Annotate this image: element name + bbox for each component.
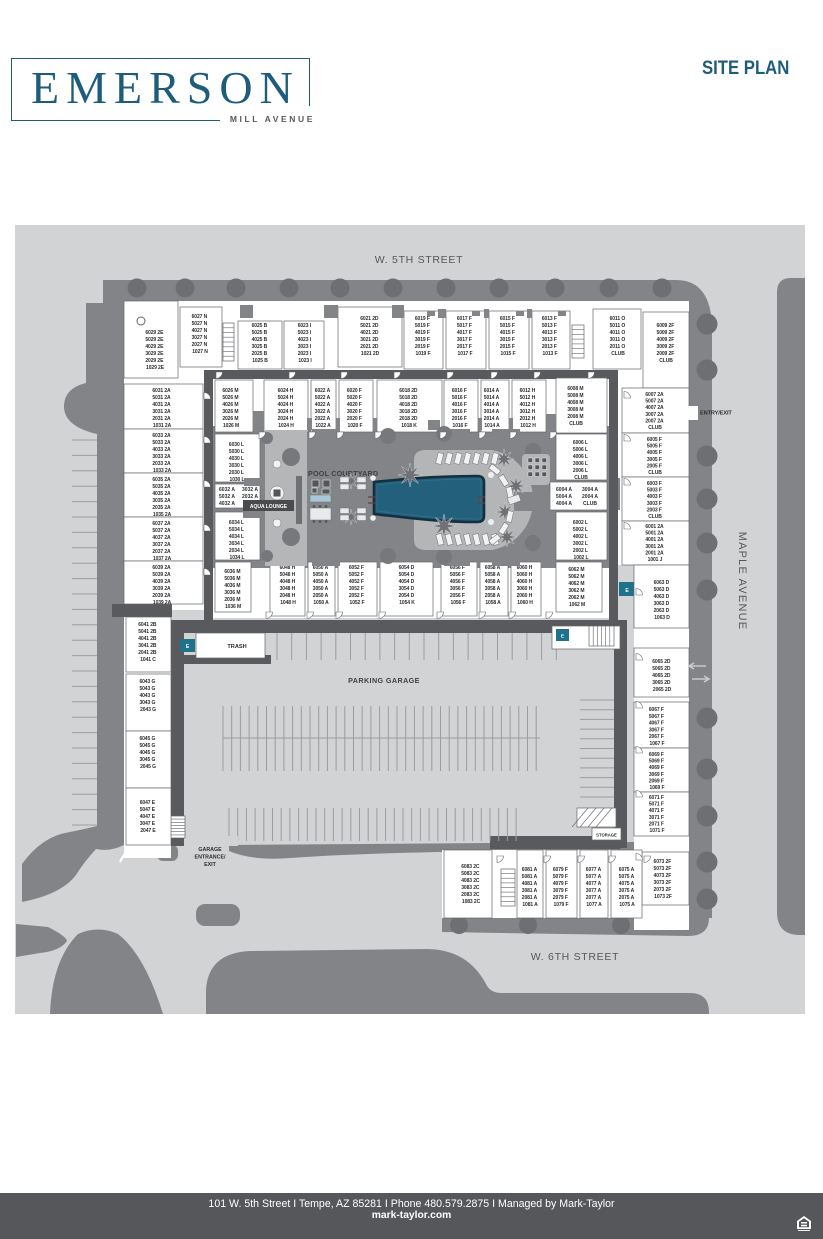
svg-text:6035 2A 5035 2A 4035 2A 3035 2: 6035 2A 5035 2A 4035 2A 3035 2A 2035 2A …	[152, 477, 171, 518]
svg-text:6002 L 5002 L 4002 L 3002 L 20: 6002 L 5002 L 4002 L 3002 L 2002 L 1002 …	[573, 520, 589, 561]
svg-text:6030 L 5030 L 4030 L 3030 L 20: 6030 L 5030 L 4030 L 3030 L 2030 L 1030 …	[229, 442, 245, 483]
svg-text:6020 F 5020 F 4020 F 3020 F 20: 6020 F 5020 F 4020 F 3020 F 2020 F 1020 …	[347, 388, 363, 429]
svg-text:6029 2E 5029 2E 4029 2E 3029 2: 6029 2E 5029 2E 4029 2E 3029 2E 2029 2E …	[145, 330, 164, 371]
svg-text:6013 F 5013 F 4013 F 3013 F 20: 6013 F 5013 F 4013 F 3013 F 2013 F 1013 …	[542, 316, 558, 357]
svg-text:6016 F 5016 F 4016 F 3016 F 20: 6016 F 5016 F 4016 F 3016 F 2016 F 1016 …	[452, 388, 468, 429]
svg-text:6034 L 5034 L 4034 L 3034 L 20: 6034 L 5034 L 4034 L 3034 L 2034 L 1034 …	[229, 520, 245, 561]
svg-text:6069 F 5069 F 4069 F 3069 F 20: 6069 F 5069 F 4069 F 3069 F 2069 F 1069 …	[649, 752, 665, 791]
svg-text:6071 F 5071 F 4071 F 3071 F 20: 6071 F 5071 F 4071 F 3071 F 2071 F 1071 …	[649, 795, 665, 834]
svg-text:6081 A 5081 A 4081 A 3081 A 20: 6081 A 5081 A 4081 A 3081 A 2081 A 1081 …	[522, 867, 538, 908]
svg-text:6077 A 5077 A 4077 A 3077 A 20: 6077 A 5077 A 4077 A 3077 A 2077 A 1077 …	[586, 867, 602, 908]
svg-text:6031 2A 5031 2A 4031 2A 3031 2: 6031 2A 5031 2A 4031 2A 3031 2A 2031 2A …	[152, 388, 171, 429]
svg-text:6075 A 5075 A 4075 A 3075 A 20: 6075 A 5075 A 4075 A 3075 A 2075 A 1075 …	[619, 867, 635, 908]
svg-text:6067 F 5067 F 4067 F 3067 F 20: 6067 F 5067 F 4067 F 3067 F 2067 F 1067 …	[649, 707, 665, 747]
svg-text:AQUA LOUNGE: AQUA LOUNGE	[250, 504, 288, 510]
svg-text:6063 D 5063 D 4063 D 3063 D 20: 6063 D 5063 D 4063 D 3063 D 2063 D 1063 …	[654, 580, 671, 621]
svg-text:6018 2D 5018 2D 4018 2D 3018 2: 6018 2D 5018 2D 4018 2D 3018 2D 2018 2D …	[399, 388, 419, 429]
svg-text:6006 L 5006 L 4006 L 3006 L 20: 6006 L 5006 L 4006 L 3006 L 2006 L CLUB	[573, 440, 589, 481]
svg-text:6033 2A 5033 2A 4033 2A 3033 2: 6033 2A 5033 2A 4033 2A 3033 2A 2033 2A …	[152, 433, 171, 474]
svg-text:W. 5TH STREET: W. 5TH STREET	[375, 254, 463, 266]
svg-text:TRASH: TRASH	[227, 644, 246, 650]
svg-text:6004 A5004 A4004 A: 6004 A5004 A4004 A	[556, 487, 572, 507]
svg-text:6052 F 5052 F 4052 F 3052 F 20: 6052 F 5052 F 4052 F 3052 F 2052 F 1052 …	[349, 565, 365, 606]
svg-text:6065 2D 5065 2D 4065 2D 3065 2: 6065 2D 5065 2D 4065 2D 3065 2D 2065 2D	[652, 659, 672, 693]
svg-text:6022 A 5022 A 4022 A 3022 A 20: 6022 A 5022 A 4022 A 3022 A 2022 A 1022 …	[315, 388, 331, 429]
svg-text:6017 F 5017 F 4017 F 3017 F 20: 6017 F 5017 F 4017 F 3017 F 2017 F 1017 …	[457, 316, 473, 357]
svg-text:6056 F 5056 F 4056 F 3056 F 20: 6056 F 5056 F 4056 F 3056 F 2056 F 1056 …	[450, 565, 466, 606]
svg-text:6001 2A 5001 2A 4001 2A 3001 2: 6001 2A 5001 2A 4001 2A 3001 2A 2001 2A …	[645, 524, 664, 563]
svg-text:6054 D 5054 D 4054 D 3054 D 20: 6054 D 5054 D 4054 D 3054 D 2054 D 1054 …	[399, 565, 416, 606]
svg-text:6009 2F 5009 2F 4009 2F 3009 2: 6009 2F 5009 2F 4009 2F 3009 2F 2009 2F …	[657, 323, 676, 364]
svg-text:6060 H 5060 H 4060 H 3060 H 20: 6060 H 5060 H 4060 H 3060 H 2060 H 1060 …	[517, 565, 534, 606]
svg-text:6003 F 5003 F 4003 F 3003 F 20: 6003 F 5003 F 4003 F 3003 F 2003 F CLUB	[647, 481, 663, 520]
svg-text:6073 2F 5073 2F 4073 2F 3073 2: 6073 2F 5073 2F 4073 2F 3073 2F 2073 2F …	[654, 859, 673, 900]
svg-text:6058 A 5058 A 4058 A 3058 A 20: 6058 A 5058 A 4058 A 3058 A 2058 A 1058 …	[485, 565, 501, 606]
svg-text:6037 2A 5037 2A 4037 2A 3037 2: 6037 2A 5037 2A 4037 2A 3037 2A 2037 2A …	[152, 521, 171, 562]
svg-text:6026 M 5026 M 4026 M 3026 M 20: 6026 M 5026 M 4026 M 3026 M 2026 M 1026 …	[222, 388, 239, 429]
svg-text:3032 A2032 A: 3032 A2032 A	[242, 487, 258, 500]
svg-text:MAPLE AVENUE: MAPLE AVENUE	[736, 532, 748, 631]
svg-text:6047 E 5047 E 4047 E 3047 E 20: 6047 E 5047 E 4047 E 3047 E 2047 E	[140, 800, 157, 834]
svg-text:POOL COURTYARD: POOL COURTYARD	[308, 469, 378, 478]
svg-text:6039 2A 5039 2A 4039 2A 3039 2: 6039 2A 5039 2A 4039 2A 3039 2A 2039 2A …	[152, 565, 171, 606]
svg-text:6027 N 5027 N 4027 N 3027 N 20: 6027 N 5027 N 4027 N 3027 N 2027 N 1027 …	[192, 314, 209, 355]
svg-text:6050 A 5050 A 4050 A 3050 A 20: 6050 A 5050 A 4050 A 3050 A 2050 A 1050 …	[313, 565, 329, 606]
svg-text:6008 M 5008 M 4008 M 3008 M 20: 6008 M 5008 M 4008 M 3008 M 2008 M CLUB	[567, 386, 584, 427]
svg-text:6014 A 5014 A 4014 A 3014 A 20: 6014 A 5014 A 4014 A 3014 A 2014 A 1014 …	[484, 388, 500, 429]
svg-text:6041 2B 5041 2B 4041 2B 3041 2: 6041 2B 5041 2B 4041 2B 3041 2B 2041 2B …	[138, 622, 158, 663]
svg-text:6045 G 5045 G 4045 G 3045 G 20: 6045 G 5045 G 4045 G 3045 G 2045 G	[139, 736, 156, 770]
svg-text:6012 H 5012 H 4012 H 3012 H 20: 6012 H 5012 H 4012 H 3012 H 2012 H 1012 …	[520, 388, 537, 429]
svg-text:ENTRY/EXIT: ENTRY/EXIT	[700, 411, 732, 417]
svg-text:6011 O 5011 O 4011 O 3011 O 20: 6011 O 5011 O 4011 O 3011 O 2011 O CLUB	[610, 316, 627, 357]
svg-text:6079 F 5079 F 4079 F 3079 F 20: 6079 F 5079 F 4079 F 3079 F 2079 F 1079 …	[553, 867, 569, 908]
svg-text:6021 2D 5021 2D 4021 2D 3021 2: 6021 2D 5021 2D 4021 2D 3021 2D 2021 2D …	[360, 316, 380, 357]
svg-text:6019 F 5019 F 4019 F 3019 F 20: 6019 F 5019 F 4019 F 3019 F 2019 F 1019 …	[415, 316, 431, 357]
svg-text:6032 A5032 A4032 A: 6032 A5032 A4032 A	[219, 487, 235, 507]
svg-text:6015 F 5015 F 4015 F 3015 F 20: 6015 F 5015 F 4015 F 3015 F 2015 F 1015 …	[500, 316, 516, 357]
svg-text:STORAGE: STORAGE	[596, 833, 617, 838]
svg-text:6005 F 5005 F 4005 F 3005 F 20: 6005 F 5005 F 4005 F 3005 F 2005 F CLUB	[647, 437, 663, 476]
svg-text:6048 H 5048 H 4048 H 3048 H 20: 6048 H 5048 H 4048 H 3048 H 2048 H 1048 …	[280, 565, 297, 606]
svg-text:6062 M 5062 M 4062 M 3062 M 20: 6062 M 5062 M 4062 M 3062 M 2062 M 1062 …	[568, 567, 585, 608]
svg-text:6036 M 5036 M 4036 M 3036 M 20: 6036 M 5036 M 4036 M 3036 M 2036 M 1036 …	[224, 569, 241, 610]
svg-text:6023 I 5023 I 4023 I 3023 I 20: 6023 I 5023 I 4023 I 3023 I 2023 I 1023 …	[298, 323, 313, 364]
svg-text:6083 2C 5083 2C 4083 2C 3083 2: 6083 2C 5083 2C 4083 2C 3083 2C 2083 2C …	[461, 864, 481, 905]
svg-text:6024 H 5024 H 4024 H 3024 H 20: 6024 H 5024 H 4024 H 3024 H 2024 H 1024 …	[278, 388, 295, 429]
svg-text:PARKING GARAGE: PARKING GARAGE	[348, 676, 420, 685]
svg-text:W. 6TH STREET: W. 6TH STREET	[531, 951, 619, 963]
svg-text:3004 A2004 ACLUB: 3004 A2004 ACLUB	[582, 487, 598, 507]
svg-text:6025 B 5025 B 4025 B 3025 B 20: 6025 B 5025 B 4025 B 3025 B 2025 B 1025 …	[252, 323, 269, 364]
svg-text:6043 G 5043 G 4043 G 3043 G 20: 6043 G 5043 G 4043 G 3043 G 2043 G	[139, 679, 156, 713]
